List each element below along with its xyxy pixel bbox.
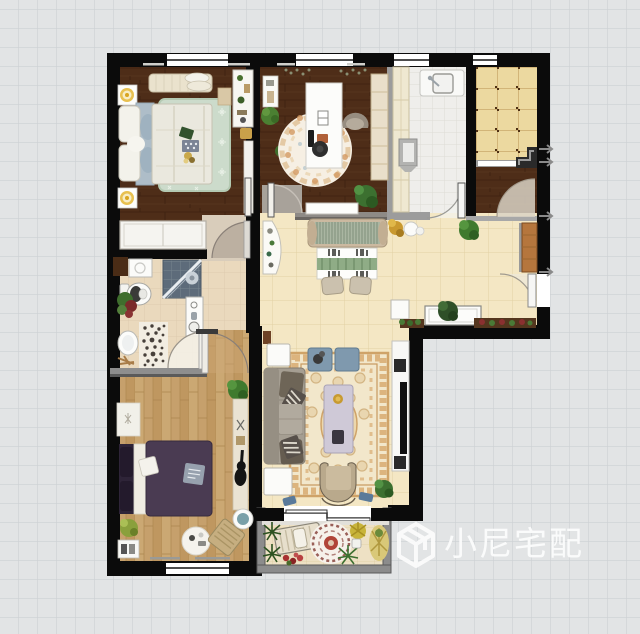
svg-text:小尼宅配: 小尼宅配 — [444, 525, 584, 562]
